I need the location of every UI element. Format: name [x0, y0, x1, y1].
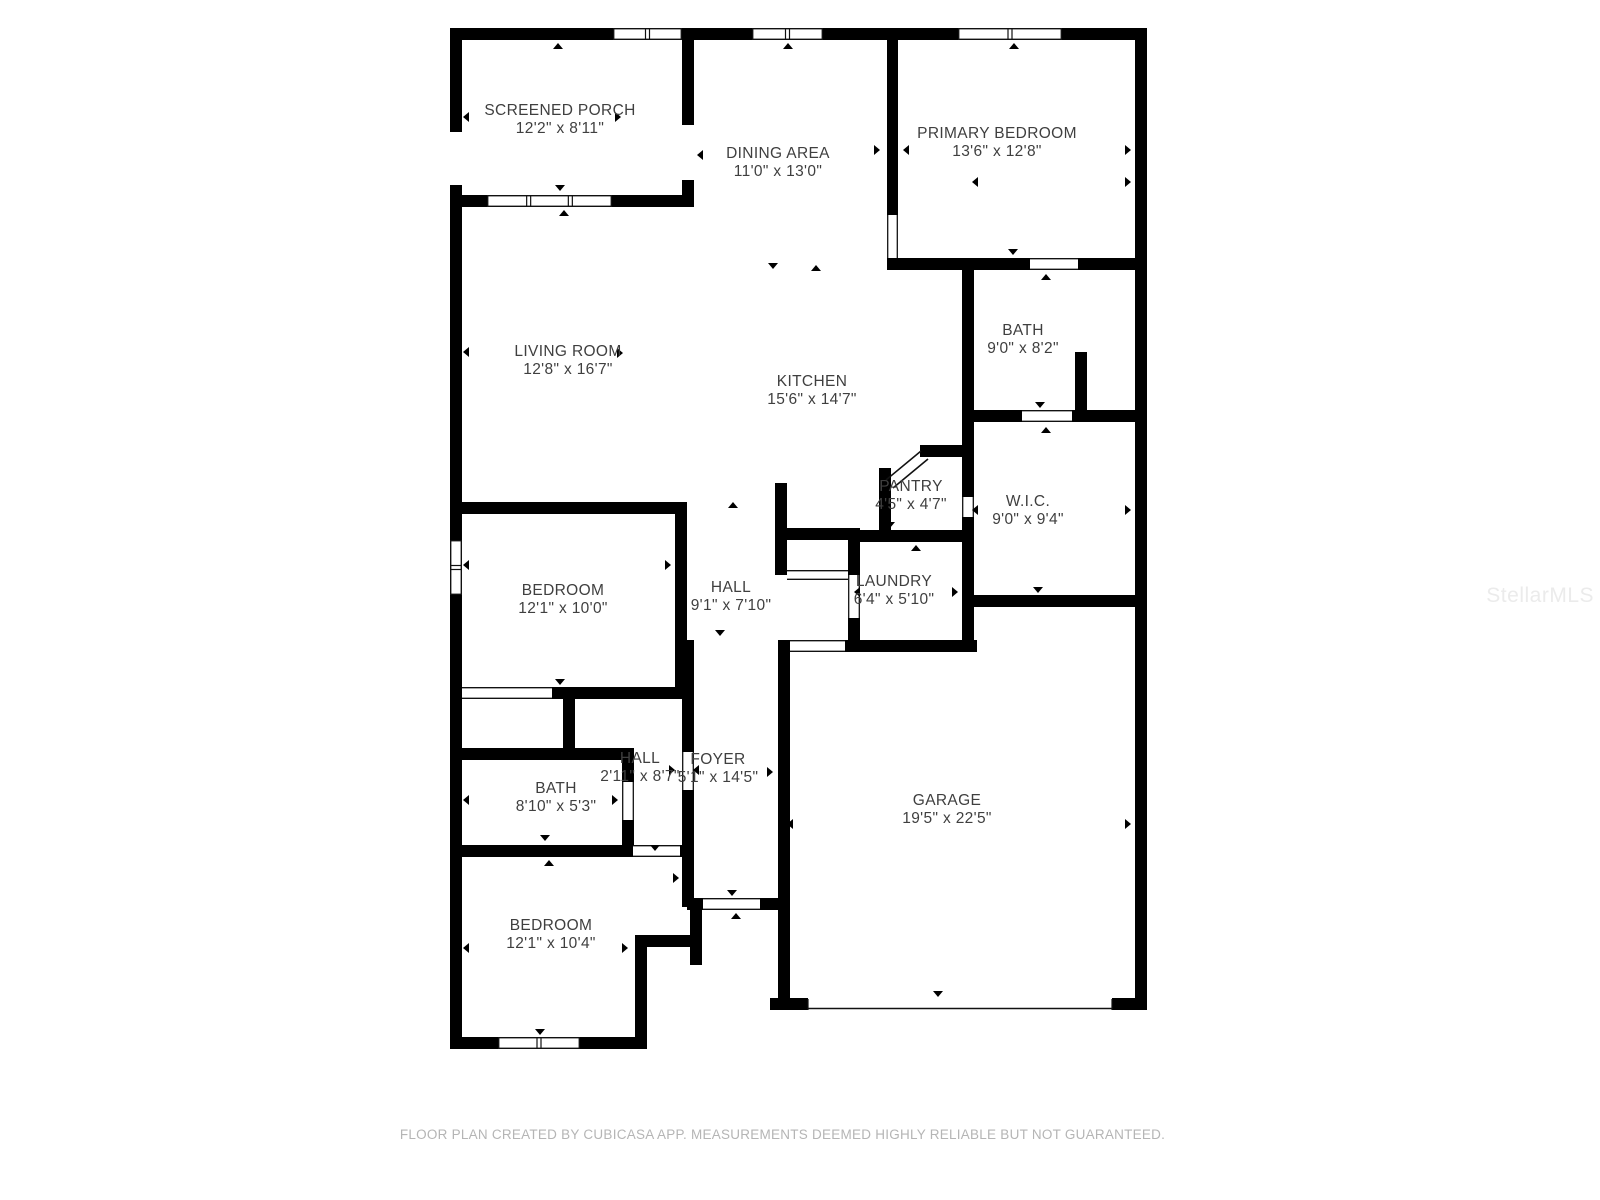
room-label-bedroom-2: BEDROOM	[510, 917, 593, 934]
wall	[920, 445, 974, 457]
room-label-dining-area: DINING AREA	[726, 145, 830, 162]
room-dims-pantry: 4'5" x 4'7"	[875, 496, 947, 513]
room-dims-wic: 9'0" x 9'4"	[992, 511, 1064, 528]
wall	[635, 935, 647, 1049]
wall	[647, 935, 694, 947]
room-label-bath-2: BATH	[535, 780, 577, 797]
dimension-arrow-icon	[1035, 402, 1045, 408]
dimension-arrow-icon	[933, 991, 943, 997]
dimension-arrow-icon	[544, 860, 554, 866]
dimension-arrow-icon	[1041, 274, 1051, 280]
door-opening	[1022, 410, 1072, 422]
dimension-arrow-icon	[1008, 249, 1018, 255]
dimension-arrow-icon	[783, 43, 793, 49]
dimension-arrow-icon	[811, 265, 821, 271]
room-label-foyer: FOYER	[690, 751, 745, 768]
dimension-arrow-icon	[768, 263, 778, 269]
dimension-arrow-icon	[727, 890, 737, 896]
dimension-arrow-icon	[767, 767, 773, 777]
door-opening	[1030, 258, 1078, 270]
window-icon	[488, 196, 612, 207]
wall	[1075, 352, 1087, 422]
floor-plan: SCREENED PORCH12'2" x 8'11"DINING AREA11…	[0, 0, 1600, 1200]
room-dims-bath-1: 9'0" x 8'2"	[987, 340, 1059, 357]
room-label-hall-1: HALL	[711, 579, 751, 596]
window-icon	[614, 29, 682, 40]
room-label-laundry: LAUNDRY	[856, 573, 932, 590]
room-label-bedroom-1: BEDROOM	[522, 582, 605, 599]
dimension-arrow-icon	[559, 210, 569, 216]
dimension-arrow-icon	[697, 150, 703, 160]
dimension-arrow-icon	[673, 873, 679, 883]
dimension-arrow-icon	[1125, 505, 1131, 515]
room-dims-bedroom-1: 12'1" x 10'0"	[518, 600, 608, 617]
dimension-arrow-icon	[463, 112, 469, 122]
dimension-arrow-icon	[1041, 427, 1051, 433]
room-label-garage: GARAGE	[913, 792, 981, 809]
wall	[563, 699, 575, 748]
dimension-arrow-icon	[463, 795, 469, 805]
room-dims-screened-porch: 12'2" x 8'11"	[516, 120, 604, 137]
dimension-arrow-icon	[463, 560, 469, 570]
dimension-arrow-icon	[665, 560, 671, 570]
window-icon	[753, 29, 823, 40]
room-dims-living-room: 12'8" x 16'7"	[523, 361, 613, 378]
dimension-arrow-icon	[555, 679, 565, 685]
stellar-mls-watermark: StellarMLS	[1486, 584, 1594, 608]
dimension-arrow-icon	[622, 943, 628, 953]
window-icon	[959, 29, 1062, 40]
dimension-arrow-icon	[535, 1029, 545, 1035]
dimension-arrow-icon	[1125, 177, 1131, 187]
room-label-primary-bedroom: PRIMARY BEDROOM	[917, 125, 1077, 142]
room-dims-bath-2: 8'10" x 5'3"	[516, 798, 597, 815]
room-dims-kitchen: 15'6" x 14'7"	[767, 391, 857, 408]
room-dims-bedroom-2: 12'1" x 10'4"	[506, 935, 596, 952]
wall-opening	[450, 132, 462, 185]
room-dims-foyer: 5'1" x 14'5"	[678, 769, 759, 786]
wall	[1135, 28, 1147, 1010]
dimension-arrow-icon	[553, 43, 563, 49]
wall	[690, 910, 702, 965]
room-label-kitchen: KITCHEN	[777, 373, 847, 390]
door-opening	[622, 782, 634, 820]
wall	[552, 687, 687, 699]
dimension-arrow-icon	[463, 943, 469, 953]
dimension-arrow-icon	[715, 630, 725, 636]
dimension-arrow-icon	[911, 545, 921, 551]
room-dims-hall-1: 9'1" x 7'10"	[691, 597, 772, 614]
dimension-arrow-icon	[903, 145, 909, 155]
room-label-pantry: PANTRY	[879, 478, 943, 495]
dimension-arrow-icon	[463, 347, 469, 357]
room-dims-laundry: 6'4" x 5'10"	[854, 591, 935, 608]
door-opening	[887, 215, 898, 258]
window-icon	[499, 1038, 580, 1049]
room-dims-dining-area: 11'0" x 13'0"	[734, 163, 822, 180]
room-label-living-room: LIVING ROOM	[514, 343, 621, 360]
wall	[848, 530, 974, 542]
door-opening	[790, 640, 845, 652]
door-opening	[462, 687, 552, 699]
door-opening	[787, 570, 848, 580]
room-label-wic: W.I.C.	[1006, 493, 1050, 510]
wall	[787, 528, 860, 540]
window-icon	[451, 541, 462, 595]
room-label-screened-porch: SCREENED PORCH	[484, 102, 635, 119]
dimension-arrow-icon	[1125, 819, 1131, 829]
room-label-hall-2: HALL	[620, 750, 660, 767]
footer-disclaimer: FLOOR PLAN CREATED BY CUBICASA APP. MEAS…	[0, 1127, 1565, 1142]
dimension-arrow-icon	[540, 835, 550, 841]
dimension-arrow-icon	[612, 795, 618, 805]
dimension-arrow-icon	[731, 913, 741, 919]
dimension-arrow-icon	[972, 177, 978, 187]
wall	[450, 502, 687, 514]
room-label-bath-1: BATH	[1002, 322, 1044, 339]
pantry-diagonal-door-icon	[886, 451, 921, 480]
door-opening	[962, 497, 974, 517]
wall	[887, 258, 1147, 270]
room-dims-primary-bedroom: 13'6" x 12'8"	[952, 143, 1042, 160]
wall	[775, 483, 787, 575]
dimension-arrow-icon	[952, 587, 958, 597]
dimension-arrow-icon	[1125, 145, 1131, 155]
room-dims-garage: 19'5" x 22'5"	[902, 810, 992, 827]
room-dims-hall-2: 2'11" x 8'7"	[600, 768, 679, 785]
dimension-arrow-icon	[1033, 587, 1043, 593]
dimension-arrow-icon	[1009, 43, 1019, 49]
door-opening	[703, 898, 760, 910]
dimension-arrow-icon	[874, 145, 880, 155]
wall-opening	[682, 125, 694, 180]
dimension-arrow-icon	[728, 502, 738, 508]
dimension-arrow-icon	[555, 185, 565, 191]
